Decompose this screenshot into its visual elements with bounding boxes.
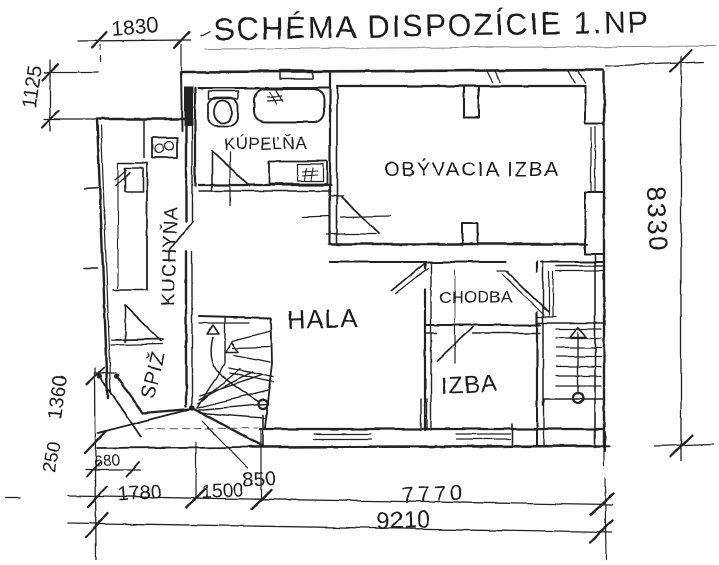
svg-text:9210: 9210: [376, 506, 430, 535]
svg-text:OBÝVACIA IZBA: OBÝVACIA IZBA: [384, 158, 560, 181]
svg-text:CHODBA: CHODBA: [439, 288, 513, 307]
svg-text:1780: 1780: [117, 481, 163, 506]
svg-text:IZBA: IZBA: [440, 370, 499, 400]
svg-text:KÚPEĽŇA: KÚPEĽŇA: [224, 134, 307, 154]
svg-text:1500: 1500: [201, 480, 244, 503]
svg-text:680: 680: [93, 452, 121, 471]
svg-text:7770: 7770: [401, 480, 467, 508]
svg-text:1830: 1830: [110, 14, 159, 41]
svg-text:850: 850: [242, 468, 277, 492]
svg-text:HALA: HALA: [286, 303, 359, 335]
svg-text:8330: 8330: [641, 186, 673, 253]
svg-text:KUCHYŇA: KUCHYŇA: [157, 206, 182, 307]
